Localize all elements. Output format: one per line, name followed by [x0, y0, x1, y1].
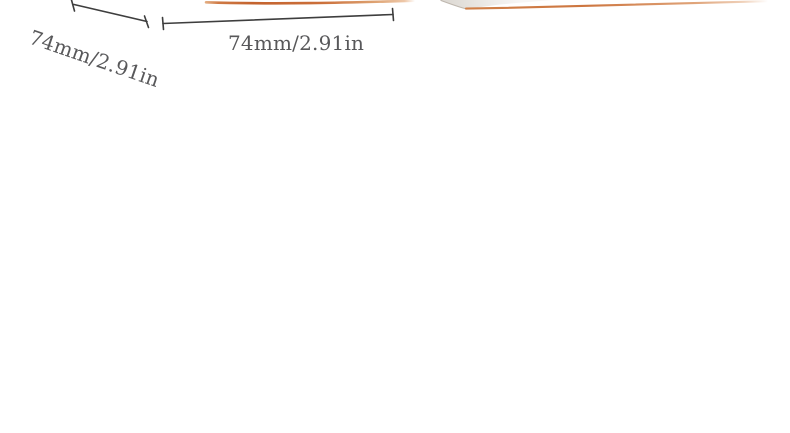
width-dimension-line — [163, 9, 394, 30]
dimension-lines — [72, 0, 394, 30]
left-product-image-edge — [206, 1, 415, 4]
product-dimensions-section: 74mm/2.91in 74mm/2.91in — [0, 0, 790, 433]
depth-dimension-line — [72, 0, 149, 28]
right-product-image-edge — [440, 0, 767, 9]
width-dimension-label: 74mm/2.91in — [228, 31, 364, 55]
product-gallery-graphics — [0, 0, 790, 100]
